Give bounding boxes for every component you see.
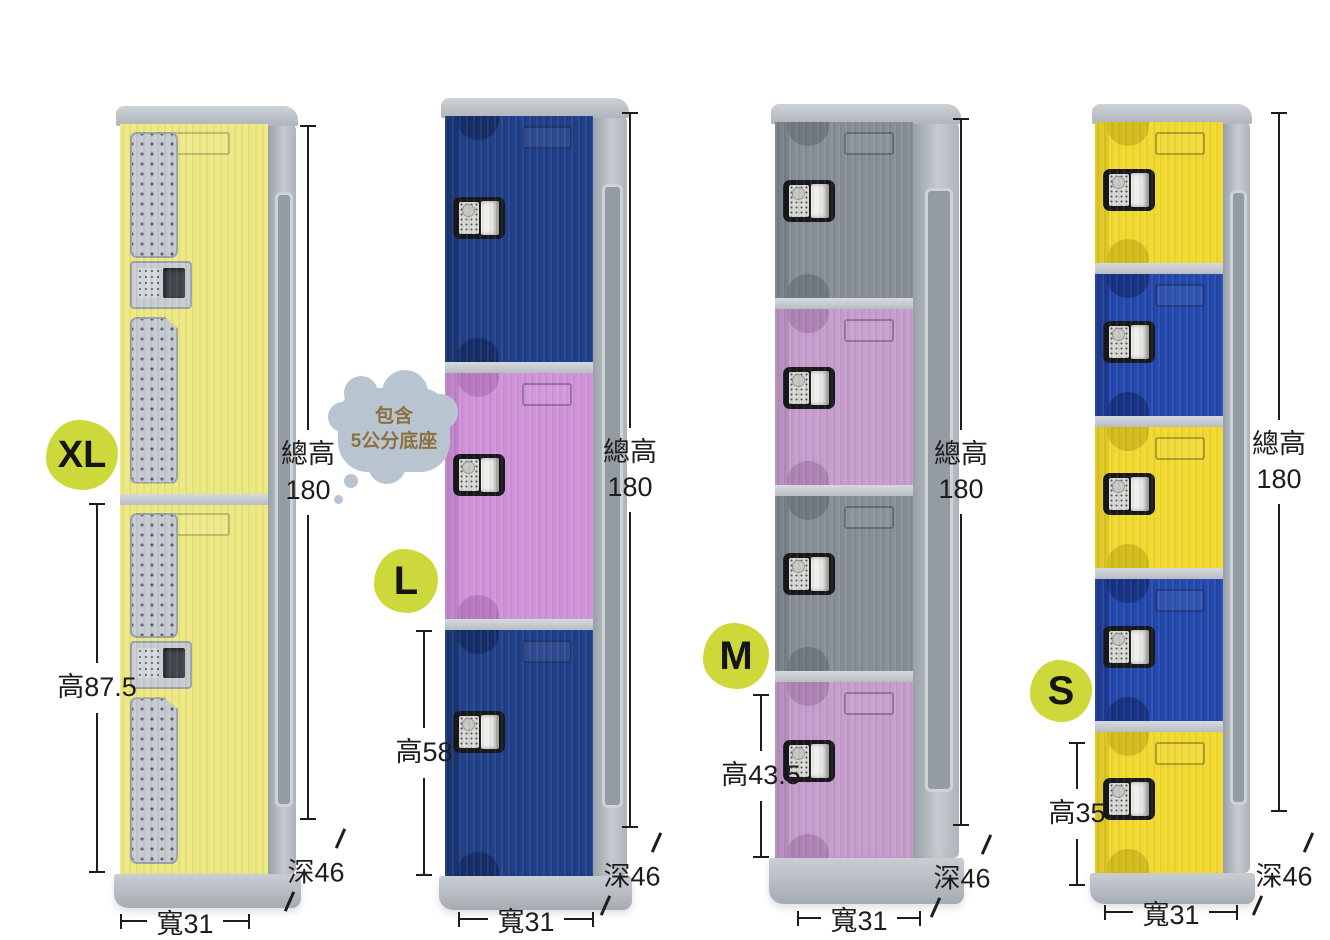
door-bump-top — [1107, 122, 1149, 146]
dim-width-s-text: 寬31 — [1133, 893, 1208, 932]
lock-keypad — [1109, 174, 1129, 206]
dim-width-xl: 寬31 — [120, 906, 250, 936]
door-name-slot — [844, 132, 894, 155]
door-separator — [1095, 416, 1223, 427]
dim-tick — [919, 911, 921, 926]
lock-handle — [481, 458, 499, 492]
lock-handle — [481, 715, 499, 749]
locker-door — [120, 124, 268, 494]
size-badge-xl: XL — [46, 420, 118, 490]
dim-total-height-l-text: 總高 180 — [603, 428, 657, 512]
dim-tick — [1069, 884, 1085, 886]
dim-door-height-xl-text: 高87.5 — [57, 663, 137, 712]
door-bump-top — [787, 309, 829, 333]
door-lock — [1103, 321, 1155, 363]
dim-total-height-xl: 總高 180 — [300, 125, 316, 820]
locker-door — [445, 373, 593, 619]
door-bump-top — [787, 122, 829, 146]
dim-total-height-s-text: 總高 180 — [1252, 420, 1306, 504]
dim-depth-xl-text: 深46 — [287, 851, 344, 890]
door-bump-top — [1107, 274, 1149, 298]
door-name-slot — [1155, 742, 1205, 765]
door-bump-top — [787, 496, 829, 520]
door-name-slot — [522, 383, 572, 406]
dim-tick — [1236, 905, 1238, 920]
lock-handle — [1131, 630, 1149, 664]
locker-door — [775, 122, 913, 298]
door-bump-top — [787, 682, 829, 706]
dim-line — [307, 127, 309, 430]
dim-depth-m-text: 深46 — [933, 857, 990, 896]
locker-door — [445, 116, 593, 362]
dim-width-xl-text: 寬31 — [147, 902, 222, 940]
door-name-slot — [172, 132, 230, 155]
door-lock — [783, 367, 835, 409]
dim-door-height-m: 高43.5 — [753, 694, 769, 858]
door-lock — [1103, 626, 1155, 668]
locker-door — [1095, 579, 1223, 720]
door-bump-bottom — [1107, 392, 1149, 416]
lock-keypad — [789, 372, 809, 404]
door-name-slot — [1155, 589, 1205, 612]
dim-door-height-l: 高58 — [416, 630, 432, 876]
bubble-tail — [344, 474, 358, 488]
locker-door — [775, 309, 913, 485]
locker-door — [445, 630, 593, 876]
dim-width-m: 寬31 — [797, 903, 921, 933]
door-lock — [130, 261, 192, 309]
dim-total-height-m: 總高 180 — [953, 118, 969, 826]
dim-line — [1278, 504, 1280, 810]
dim-line — [760, 696, 762, 751]
door-separator — [445, 619, 593, 630]
door-lock — [783, 180, 835, 222]
door-separator — [1095, 568, 1223, 579]
dim-depth-xl: 深46 — [276, 830, 356, 910]
door-separator — [445, 362, 593, 373]
dim-door-height-s-text: 高35 — [1048, 789, 1105, 838]
base-note-text: 包含 5公分底座 — [338, 388, 450, 472]
dim-tick — [1271, 810, 1287, 812]
door-bump-bottom — [457, 595, 499, 619]
dim-door-height-s: 高35 — [1069, 742, 1085, 886]
dim-line — [460, 918, 488, 920]
door-name-slot — [844, 319, 894, 342]
dim-line — [96, 713, 98, 871]
door-bump-top — [457, 630, 499, 654]
dim-line — [960, 514, 962, 824]
door-vent-panel — [130, 132, 178, 258]
door-name-slot — [1155, 284, 1205, 307]
door-lock — [453, 454, 505, 496]
door-bump-top — [1107, 732, 1149, 756]
door-separator — [1095, 721, 1223, 732]
door-vent-panel — [130, 317, 178, 484]
dim-tick — [1252, 895, 1263, 915]
dim-tick — [416, 874, 432, 876]
dim-line — [223, 920, 248, 922]
door-lock — [453, 711, 505, 753]
dim-line — [629, 512, 631, 826]
dim-line — [897, 917, 919, 919]
door-name-slot — [1155, 132, 1205, 155]
dim-tick — [335, 828, 346, 848]
lock-keypad — [789, 558, 809, 590]
door-bump-bottom — [457, 852, 499, 876]
dim-line — [423, 632, 425, 728]
dim-depth-m: 深46 — [922, 836, 1002, 916]
dim-width-l: 寬31 — [458, 904, 594, 934]
lock-handle-recess — [163, 268, 185, 298]
door-lock — [453, 197, 505, 239]
dim-tick — [622, 826, 638, 828]
dim-tick — [930, 897, 941, 917]
lock-handle — [811, 744, 829, 778]
locker-xl — [116, 106, 298, 908]
lock-handle — [481, 201, 499, 235]
dim-line — [760, 801, 762, 856]
door-lock — [130, 641, 192, 689]
dim-tick — [600, 895, 611, 915]
dim-line — [1278, 114, 1280, 420]
locker-door — [120, 505, 268, 875]
door-bump-top — [457, 373, 499, 397]
lock-keypad — [1109, 783, 1129, 815]
door-bump-bottom — [787, 834, 829, 858]
lock-handle — [1131, 477, 1149, 511]
dim-line — [960, 120, 962, 430]
door-name-slot — [172, 513, 230, 536]
size-badge-m: M — [703, 623, 769, 689]
door-separator — [1095, 263, 1223, 274]
dim-tick — [1303, 832, 1314, 852]
door-bump-top — [1107, 579, 1149, 603]
door-separator — [120, 494, 268, 505]
dim-line — [1076, 839, 1078, 884]
door-bump-top — [457, 116, 499, 140]
locker-door — [1095, 274, 1223, 415]
base-note-bubble: 包含 5公分底座 — [338, 388, 450, 472]
dim-depth-l: 深46 — [592, 834, 672, 914]
dim-tick — [284, 891, 295, 911]
base-note-line2: 5公分底座 — [351, 430, 438, 455]
locker-front — [120, 124, 268, 874]
door-bump-bottom — [1107, 697, 1149, 721]
lock-handle-recess — [163, 648, 185, 678]
lock-handle — [811, 184, 829, 218]
door-bump-bottom — [787, 274, 829, 298]
dim-tick — [89, 871, 105, 873]
dim-tick — [651, 832, 662, 852]
locker-top-cap — [771, 104, 961, 124]
dim-line — [564, 918, 592, 920]
locker-door — [1095, 732, 1223, 873]
door-bump-top — [1107, 427, 1149, 451]
locker-l — [441, 98, 629, 910]
size-badge-s: S — [1030, 660, 1092, 722]
door-vent-panel — [130, 513, 178, 639]
door-lock — [1103, 778, 1155, 820]
door-bump-bottom — [1107, 849, 1149, 873]
dim-line — [629, 114, 631, 428]
lock-handle — [1131, 173, 1149, 207]
door-bump-bottom — [1107, 239, 1149, 263]
dim-width-m-text: 寬31 — [821, 899, 896, 938]
locker-side-panel — [1223, 122, 1250, 873]
lock-keypad — [459, 202, 479, 234]
dim-door-height-l-text: 高58 — [395, 728, 452, 777]
lock-keypad — [1109, 326, 1129, 358]
door-lock — [1103, 169, 1155, 211]
door-bump-bottom — [787, 461, 829, 485]
lock-keypad — [459, 716, 479, 748]
lock-keypad — [137, 648, 159, 678]
base-note-line1: 包含 — [375, 405, 413, 430]
size-badge-l: L — [374, 549, 438, 613]
door-bump-bottom — [1107, 544, 1149, 568]
lock-handle — [1131, 325, 1149, 359]
door-separator — [775, 485, 913, 496]
lock-keypad — [459, 459, 479, 491]
lock-handle — [811, 557, 829, 591]
locker-top-cap — [1092, 104, 1252, 124]
dim-total-height-m-text: 總高 180 — [934, 430, 988, 514]
locker-s — [1092, 104, 1252, 904]
locker-top-cap — [441, 98, 629, 118]
door-bump-bottom — [457, 338, 499, 362]
door-vent-panel — [130, 697, 178, 864]
dim-line — [1209, 911, 1236, 913]
door-lock — [1103, 473, 1155, 515]
dim-line — [96, 505, 98, 663]
dim-door-height-xl: 高87.5 — [89, 503, 105, 873]
dim-tick — [300, 818, 316, 820]
locker-front — [1095, 122, 1223, 873]
locker-size-diagram: XL L M S 包含 5公分底座 總高 180 高87.5 — [0, 0, 1330, 940]
dim-line — [307, 515, 309, 818]
door-separator — [775, 671, 913, 682]
door-name-slot — [1155, 437, 1205, 460]
dim-line — [799, 917, 821, 919]
dim-total-height-s: 總高 180 — [1271, 112, 1287, 812]
dim-width-l-text: 寬31 — [488, 900, 563, 939]
bubble-tail — [334, 495, 343, 504]
dim-tick — [981, 834, 992, 854]
dim-line — [1076, 744, 1078, 789]
door-name-slot — [522, 126, 572, 149]
lock-keypad — [789, 185, 809, 217]
dim-line — [1106, 911, 1133, 913]
dim-depth-s-text: 深46 — [1255, 855, 1312, 894]
dim-width-s: 寬31 — [1104, 897, 1238, 927]
door-name-slot — [844, 692, 894, 715]
dim-tick — [753, 856, 769, 858]
door-name-slot — [844, 506, 894, 529]
lock-keypad — [1109, 478, 1129, 510]
dim-tick — [953, 824, 969, 826]
door-lock — [783, 553, 835, 595]
dim-door-height-m-text: 高43.5 — [721, 751, 801, 800]
dim-line — [423, 778, 425, 874]
door-separator — [775, 298, 913, 309]
lock-handle — [1131, 782, 1149, 816]
dim-total-height-l: 總高 180 — [622, 112, 638, 828]
locker-door — [775, 496, 913, 672]
lock-keypad — [137, 268, 159, 298]
dim-line — [122, 920, 147, 922]
locker-door — [1095, 427, 1223, 568]
dim-depth-s: 深46 — [1244, 834, 1324, 914]
door-bump-bottom — [787, 647, 829, 671]
door-name-slot — [522, 640, 572, 663]
locker-front — [775, 122, 913, 858]
dim-total-height-xl-text: 總高 180 — [281, 430, 335, 514]
lock-handle — [811, 371, 829, 405]
dim-tick — [248, 914, 250, 929]
lock-keypad — [1109, 631, 1129, 663]
door-edge — [445, 116, 459, 362]
locker-top-cap — [116, 106, 298, 126]
dim-depth-l-text: 深46 — [603, 855, 660, 894]
locker-front — [445, 116, 593, 876]
locker-door — [1095, 122, 1223, 263]
